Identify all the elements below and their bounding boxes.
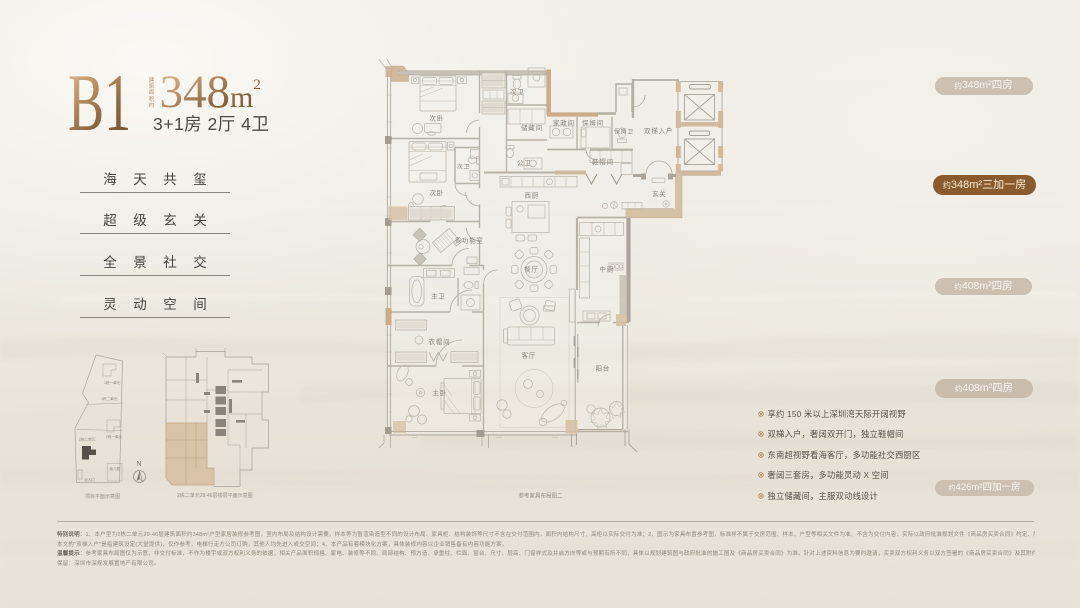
- svg-text:保姆间: 保姆间: [582, 118, 604, 127]
- svg-text:公卫: 公卫: [517, 159, 532, 167]
- svg-text:N: N: [137, 461, 142, 468]
- svg-text:次卧: 次卧: [430, 114, 445, 123]
- svg-text:西厨: 西厨: [525, 192, 540, 200]
- svg-text:次卧: 次卧: [430, 188, 445, 197]
- svg-text:2栋二单元29-46层楼层平面示意图: 2栋二单元29-46层楼层平面示意图: [177, 492, 253, 499]
- svg-text:餐厅: 餐厅: [524, 265, 539, 274]
- svg-text:次卫: 次卫: [457, 163, 470, 171]
- svg-text:客厅: 客厅: [522, 351, 537, 360]
- svg-text:1栋二单元: 1栋二单元: [101, 396, 118, 401]
- svg-text:北入口: 北入口: [84, 477, 95, 482]
- svg-text:主卫: 主卫: [431, 292, 446, 301]
- svg-text:2栋一单元: 2栋一单元: [106, 434, 123, 439]
- svg-text:项目平面示意图: 项目平面示意图: [85, 493, 120, 500]
- svg-text:鞋帽间: 鞋帽间: [592, 157, 614, 166]
- svg-text:多功能室: 多功能室: [455, 236, 484, 245]
- svg-text:玄关: 玄关: [652, 189, 667, 198]
- svg-text:中厨: 中厨: [600, 265, 615, 274]
- svg-text:家政间: 家政间: [553, 118, 575, 127]
- svg-text:幼儿园: 幼儿园: [110, 466, 121, 471]
- svg-text:双梯入户: 双梯入户: [644, 126, 673, 135]
- svg-text:2栋二单元: 2栋二单元: [79, 437, 96, 442]
- svg-text:参考家具布局图二: 参考家具布局图二: [519, 492, 564, 500]
- svg-text:阳台: 阳台: [596, 364, 611, 373]
- svg-text:主卧: 主卧: [433, 388, 448, 397]
- svg-text:保姆卫: 保姆卫: [614, 128, 634, 136]
- svg-text:储藏间: 储藏间: [521, 123, 543, 132]
- svg-text:次卫: 次卫: [510, 87, 525, 96]
- svg-text:衣帽间: 衣帽间: [429, 337, 451, 346]
- svg-text:1栋一单元: 1栋一单元: [104, 380, 121, 385]
